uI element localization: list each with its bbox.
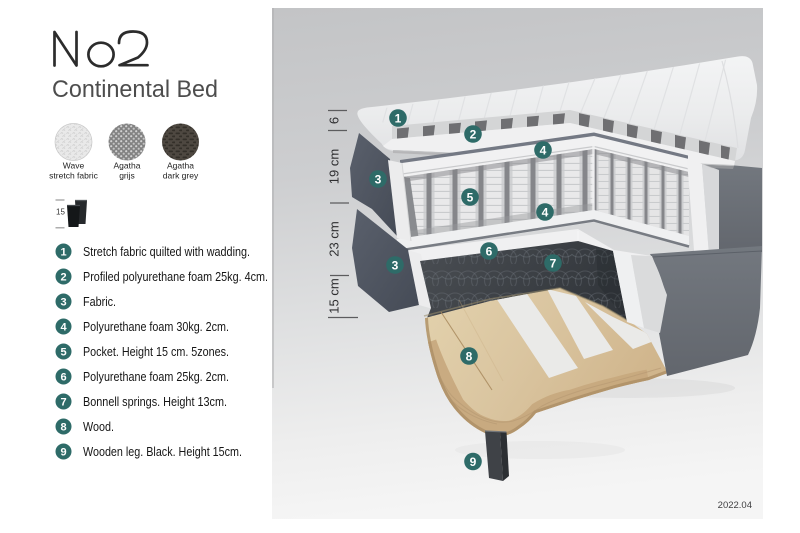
svg-text:4: 4 bbox=[60, 322, 67, 334]
svg-text:3: 3 bbox=[375, 172, 382, 186]
svg-text:2022.04: 2022.04 bbox=[718, 500, 752, 511]
svg-text:Fabric.: Fabric. bbox=[83, 294, 116, 309]
svg-text:Wooden leg. Black. Height 15cm: Wooden leg. Black. Height 15cm. bbox=[83, 444, 242, 459]
svg-text:Bonnell springs. Height 13cm.: Bonnell springs. Height 13cm. bbox=[83, 394, 227, 409]
svg-text:5: 5 bbox=[60, 347, 66, 359]
svg-text:Profiled polyurethane foam 25k: Profiled polyurethane foam 25kg. 4cm. bbox=[83, 269, 268, 284]
svg-text:5: 5 bbox=[467, 190, 474, 204]
svg-text:6: 6 bbox=[486, 244, 493, 258]
svg-text:2: 2 bbox=[470, 127, 477, 141]
svg-text:19 cm: 19 cm bbox=[327, 149, 342, 184]
svg-text:15 cm: 15 cm bbox=[327, 278, 342, 313]
svg-text:Pocket. Height 15 cm. 5zones.: Pocket. Height 15 cm. 5zones. bbox=[83, 344, 229, 359]
svg-text:3: 3 bbox=[60, 297, 66, 309]
svg-text:stretch fabric: stretch fabric bbox=[49, 171, 98, 181]
svg-text:4: 4 bbox=[542, 205, 549, 219]
svg-text:Polyurethane foam 30kg. 2cm.: Polyurethane foam 30kg. 2cm. bbox=[83, 319, 229, 334]
svg-text:6: 6 bbox=[327, 117, 342, 124]
svg-text:23 cm: 23 cm bbox=[327, 221, 342, 256]
svg-text:Agatha: Agatha bbox=[167, 161, 194, 171]
svg-text:dark grey: dark grey bbox=[163, 171, 199, 181]
svg-text:Polyurethane foam 25kg. 2cm.: Polyurethane foam 25kg. 2cm. bbox=[83, 369, 229, 384]
svg-text:1: 1 bbox=[60, 247, 66, 259]
svg-text:9: 9 bbox=[470, 455, 477, 469]
svg-text:6: 6 bbox=[60, 372, 66, 384]
svg-text:Stretch fabric quilted with wa: Stretch fabric quilted with wadding. bbox=[83, 244, 250, 259]
svg-text:4: 4 bbox=[540, 143, 547, 157]
svg-text:3: 3 bbox=[392, 258, 399, 272]
svg-text:1: 1 bbox=[395, 111, 402, 125]
svg-text:Wave: Wave bbox=[63, 161, 85, 171]
svg-text:Continental Bed: Continental Bed bbox=[52, 76, 218, 103]
svg-text:2: 2 bbox=[60, 272, 66, 284]
svg-text:Wood.: Wood. bbox=[83, 419, 114, 434]
svg-text:Agatha: Agatha bbox=[114, 161, 141, 171]
svg-text:15: 15 bbox=[56, 208, 65, 217]
svg-text:7: 7 bbox=[60, 397, 66, 409]
svg-text:grijs: grijs bbox=[119, 171, 135, 181]
svg-text:9: 9 bbox=[60, 447, 66, 459]
svg-text:8: 8 bbox=[466, 349, 473, 363]
svg-text:7: 7 bbox=[550, 256, 557, 270]
svg-text:8: 8 bbox=[60, 422, 66, 434]
